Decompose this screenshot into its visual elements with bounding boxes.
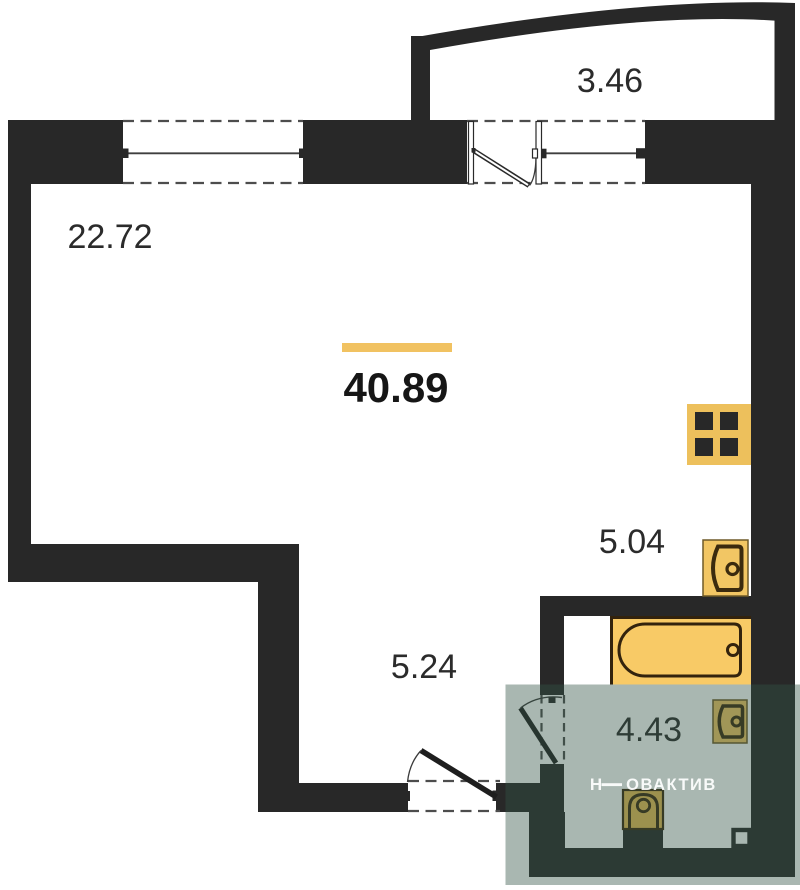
svg-text:ОВАКТИВ: ОВАКТИВ xyxy=(626,776,717,794)
svg-text:3.46: 3.46 xyxy=(577,62,643,100)
svg-text:40.89: 40.89 xyxy=(343,364,448,411)
svg-text:5.04: 5.04 xyxy=(599,523,665,561)
svg-text:5.24: 5.24 xyxy=(391,648,457,686)
svg-text:Н: Н xyxy=(590,775,602,794)
svg-text:22.72: 22.72 xyxy=(67,218,152,256)
